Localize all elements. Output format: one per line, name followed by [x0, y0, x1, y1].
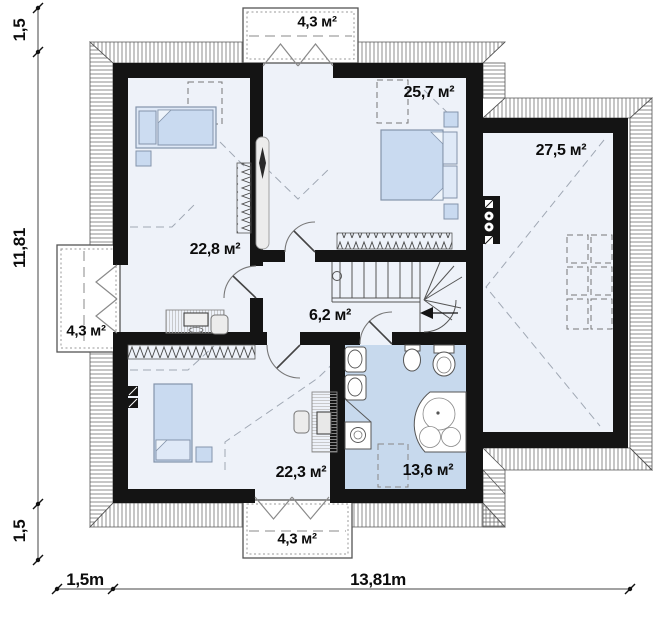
- room-area-label-hallway: 6,2 м²: [309, 307, 351, 325]
- chair: [294, 411, 309, 433]
- balcony-bottom: [243, 500, 352, 558]
- balcony-left-area-label: 4,3 м²: [66, 323, 105, 340]
- double-bed: [381, 130, 443, 200]
- room-area-label-room-right: 27,5 м²: [536, 142, 587, 160]
- floor-plan-page: 22,8 м² 25,7 м² 27,5 м² 6,2 м² 22,3 м² 1…: [0, 0, 655, 625]
- wardrobe-hangers: [128, 345, 255, 359]
- dim-left-top: 1,5: [10, 19, 30, 42]
- room-area-label-bedroom-lower-left: 22,3 м²: [276, 464, 327, 482]
- chimney-block: [481, 196, 500, 244]
- balcony-top-area-label: 4,3 м²: [297, 14, 336, 31]
- balcony-bottom-area-label: 4,3 м²: [277, 531, 316, 548]
- wardrobe-hangers: [337, 233, 452, 249]
- wardrobe-hangers: [237, 163, 251, 233]
- washing-machine: [345, 422, 371, 449]
- room-area-label-bedroom-upper-left: 22,8 м²: [190, 241, 241, 259]
- dim-left-middle: 11,81: [10, 228, 30, 268]
- dim-bottom-total: 13,81m: [350, 570, 406, 590]
- room-area-label-bathroom: 13,6 м²: [403, 462, 454, 480]
- right-room-floor: [466, 118, 628, 448]
- dim-left-bottom: 1,5: [10, 520, 30, 543]
- room-area-label-bedroom-upper-right: 25,7 м²: [404, 84, 455, 102]
- dim-bottom-left: 1,5m: [66, 570, 104, 590]
- wall-panel: [256, 137, 269, 249]
- chair: [211, 315, 228, 334]
